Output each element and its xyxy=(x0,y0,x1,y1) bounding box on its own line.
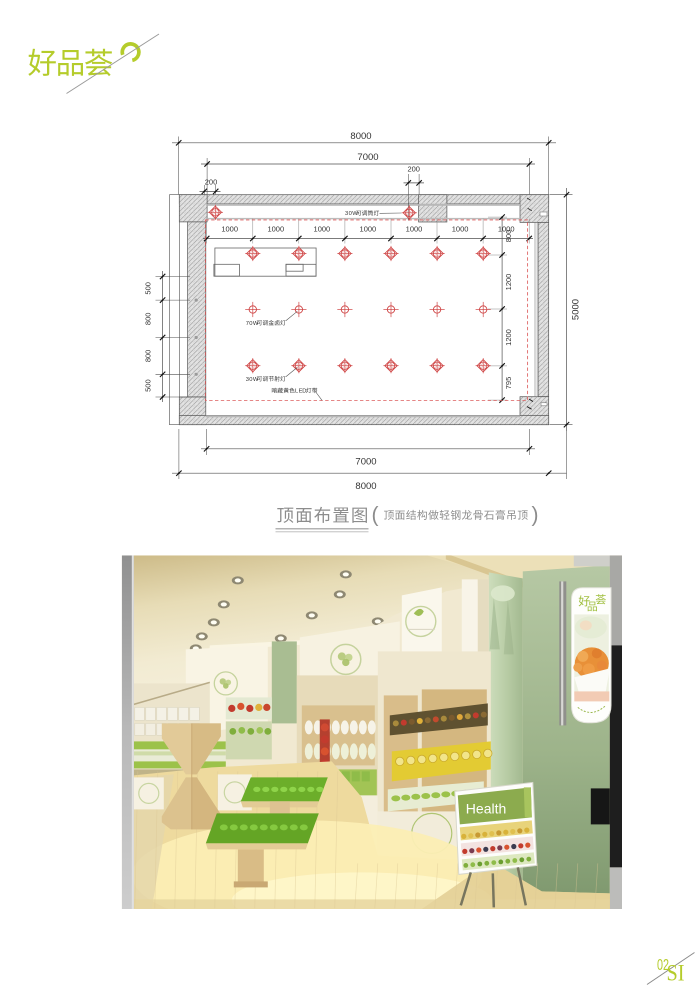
svg-text:SI: SI xyxy=(667,961,685,986)
svg-text:200: 200 xyxy=(205,178,218,187)
svg-text:1000: 1000 xyxy=(314,225,331,234)
svg-text:7000: 7000 xyxy=(355,457,376,468)
svg-text:8000: 8000 xyxy=(355,481,376,492)
svg-text:500: 500 xyxy=(144,282,153,295)
svg-text:1000: 1000 xyxy=(221,225,238,234)
svg-text:200: 200 xyxy=(407,165,420,174)
svg-text:1000: 1000 xyxy=(406,225,423,234)
svg-text:795: 795 xyxy=(504,377,513,390)
svg-text:D: D xyxy=(302,389,306,395)
svg-text:(: ( xyxy=(372,504,379,527)
svg-text:800: 800 xyxy=(144,350,153,363)
svg-text:7000: 7000 xyxy=(357,152,378,163)
svg-text:1000: 1000 xyxy=(267,225,284,234)
svg-text:800: 800 xyxy=(144,313,153,326)
svg-text:1000: 1000 xyxy=(452,225,469,234)
svg-text:500: 500 xyxy=(144,379,153,392)
svg-text:1200: 1200 xyxy=(504,329,513,346)
svg-text:1000: 1000 xyxy=(360,225,377,234)
svg-text:5000: 5000 xyxy=(571,299,582,320)
svg-text:800: 800 xyxy=(504,230,513,243)
svg-text:Health: Health xyxy=(466,800,506,816)
svg-text:): ) xyxy=(532,504,539,527)
svg-text:8000: 8000 xyxy=(350,131,371,142)
svg-text:1200: 1200 xyxy=(504,274,513,291)
